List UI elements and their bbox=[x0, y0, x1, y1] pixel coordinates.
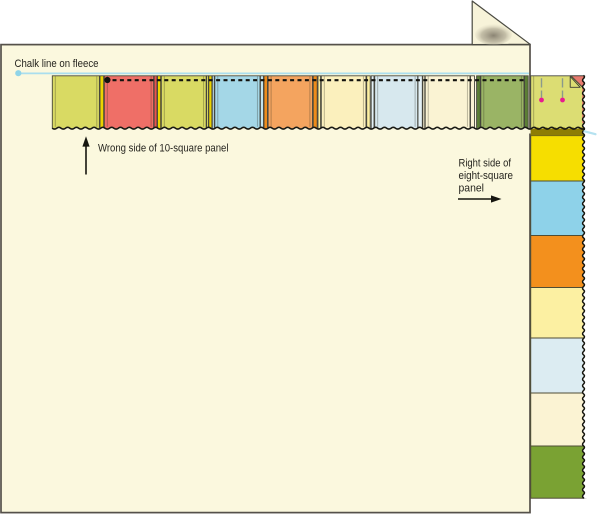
svg-text:panel: panel bbox=[459, 183, 485, 195]
svg-text:Right side of: Right side of bbox=[459, 158, 512, 170]
svg-text:eight-square: eight-square bbox=[459, 170, 514, 182]
svg-text:Chalk line on fleece: Chalk line on fleece bbox=[15, 58, 99, 70]
svg-text:Wrong side of 10-square panel: Wrong side of 10-square panel bbox=[98, 143, 229, 155]
